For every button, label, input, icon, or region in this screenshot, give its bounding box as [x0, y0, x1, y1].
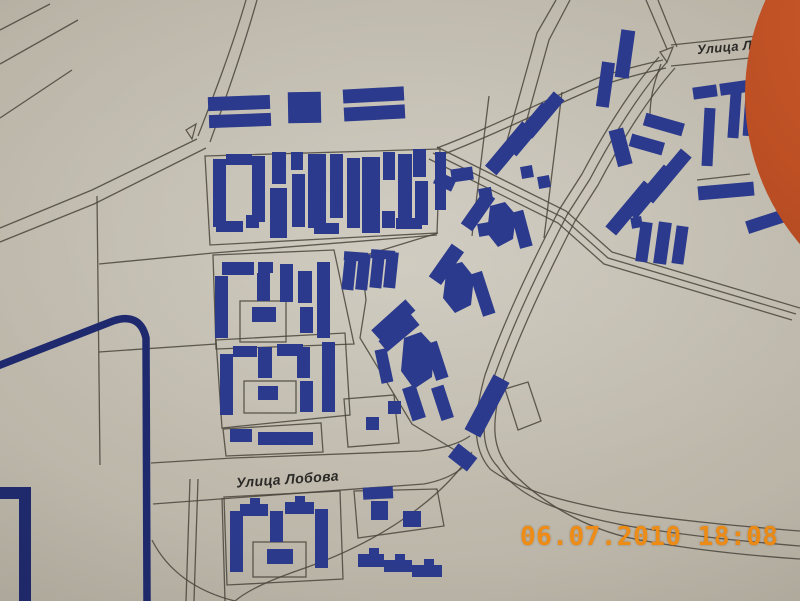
- map-photo: Улица Лобова Улица Лоб 06.07.2010 18:08: [0, 0, 800, 601]
- map-graphics: [0, 0, 800, 601]
- camera-timestamp: 06.07.2010 18:08: [520, 522, 778, 552]
- blue-frame-structure: [0, 493, 25, 601]
- buildings-layer: [208, 29, 787, 577]
